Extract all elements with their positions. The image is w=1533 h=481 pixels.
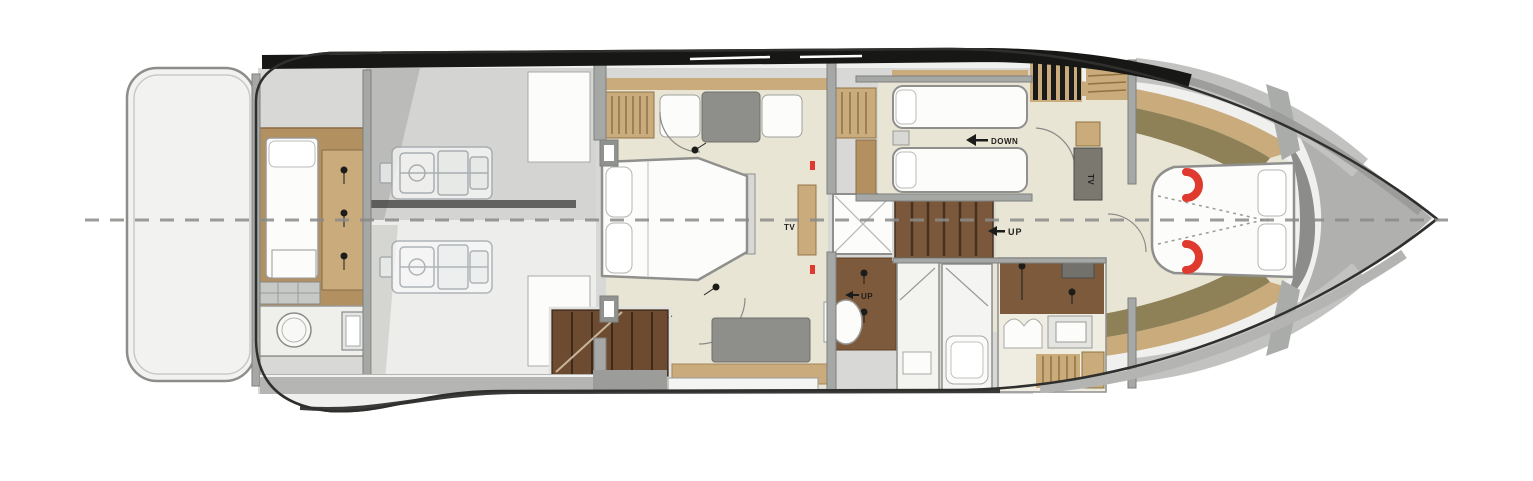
crew-engine-bulkhead [363, 70, 371, 392]
master-tv-label: TV [784, 223, 795, 232]
guest-bathrooms [897, 258, 1106, 392]
midship-stairs [893, 198, 995, 260]
crew-seat [272, 250, 316, 278]
master-bed [602, 158, 755, 280]
vip-pillow-bottom [1258, 224, 1286, 270]
crew-bed-pillow [269, 141, 315, 167]
window-glass-bottom [604, 301, 614, 317]
master-vanity-table [702, 92, 760, 142]
swim-platform [127, 68, 255, 381]
master-bench [712, 318, 810, 362]
guest-wardrobe [856, 140, 876, 196]
master-pillow-bottom [606, 223, 632, 273]
engine-port [380, 147, 492, 199]
stair-landing-gray [593, 370, 667, 392]
master-wardrobe-left [606, 92, 654, 138]
master-pillow-top [606, 167, 632, 217]
guest-cabin-wall-top [856, 76, 1032, 82]
engine-hatch-top [528, 72, 590, 162]
red-mark-bottom [810, 265, 815, 274]
shower-basin-inner [951, 342, 983, 378]
wc-sink [903, 352, 931, 374]
crew-shower-door-inner [346, 316, 360, 346]
master-mid-bulkhead-bottom [827, 252, 836, 392]
guest-down-label: DOWN [991, 137, 1018, 146]
guest-bed-1-pillow [896, 90, 916, 124]
foyer-cabinet-top [1076, 122, 1100, 146]
master-mid-bulkhead-top [827, 52, 836, 194]
window-glass-top [604, 145, 614, 161]
bottom-walkway-white [668, 378, 818, 391]
corridor-up-label: UP [1008, 227, 1023, 237]
keel-shaft-bar [366, 200, 576, 208]
guest-bed-2-pillow [896, 152, 916, 188]
master-top-shelf [606, 78, 828, 90]
aft-up-label: UP [861, 292, 873, 301]
vip-pillow-top [1258, 170, 1286, 216]
crew-cabin [258, 128, 370, 356]
bath-wall-top [893, 258, 1106, 263]
guest-tv-label: TV [1086, 174, 1095, 185]
vip-counter-sink [1056, 322, 1086, 342]
foyer: TV [1030, 56, 1130, 200]
floor-plan-canvas: TV [0, 0, 1533, 481]
guest-cabin: DOWN [836, 70, 1030, 198]
vip-bathroom [998, 258, 1106, 392]
master-sofa-right [762, 95, 802, 137]
engine-starboard [380, 241, 492, 293]
master-sofa-left [660, 95, 700, 137]
yacht-floor-plan: TV [0, 0, 1533, 481]
vip-bulkhead-top [1128, 60, 1136, 184]
guest-cabin-wall-bottom [856, 194, 1032, 201]
guest-nightstand [893, 131, 909, 145]
red-mark-top [810, 161, 815, 170]
